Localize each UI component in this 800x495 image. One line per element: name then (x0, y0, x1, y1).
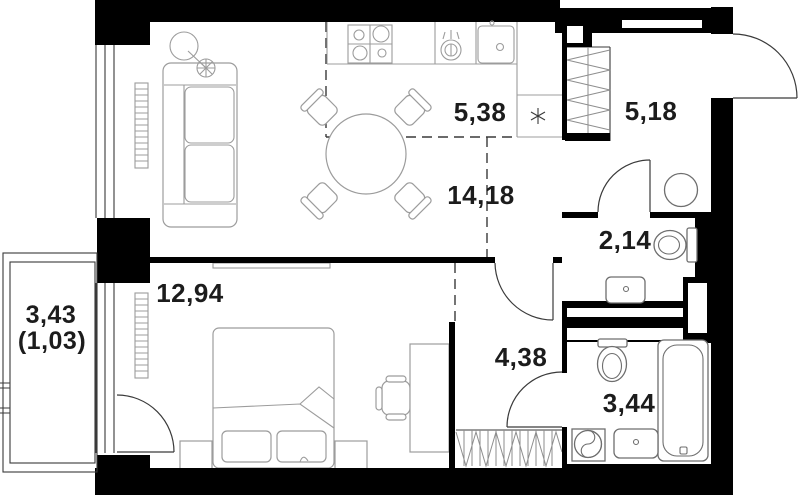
apartment-floor-plan: 5,38 5,18 14,18 2,14 12,94 4,38 3,44 3,4… (0, 0, 800, 495)
wall-right-entry-stub (711, 7, 733, 34)
shaft-opening-b (567, 328, 685, 340)
toilet-wc (654, 228, 697, 262)
wall-niche (622, 20, 702, 28)
washbasin-wc (606, 277, 645, 303)
corner-pier-top-left (95, 0, 150, 45)
desk (410, 344, 449, 452)
room-label-entrance-hall: 5,18 (625, 96, 678, 126)
washing-machine (572, 429, 605, 461)
washbasin-bathroom (614, 429, 658, 458)
shaft-opening-a (567, 308, 685, 317)
room-label-kitchen: 5,38 (454, 97, 507, 127)
nightstand-right (335, 441, 367, 469)
bed (213, 328, 334, 468)
room-label-toilet: 2,14 (599, 225, 652, 255)
pier-left (97, 218, 150, 283)
wall-top-left (95, 0, 560, 22)
closet-base (565, 133, 610, 141)
duct-opening (567, 26, 583, 43)
wall-kitchen-hall (562, 20, 567, 140)
bathtub (658, 340, 708, 461)
wall-living-bedroom (150, 257, 495, 263)
water-heater (665, 174, 698, 207)
wall-bedroom-hallway (449, 322, 455, 470)
wall-right (711, 98, 733, 495)
wall-bath-left-lower (562, 427, 567, 468)
wall-bottom-bath (562, 464, 733, 495)
room-label-hallway: 4,38 (495, 342, 548, 372)
dining-table (326, 114, 406, 194)
room-label-balcony: 3,43 (26, 301, 77, 329)
room-label-bathroom: 3,44 (603, 388, 656, 418)
pillow (277, 431, 326, 462)
sofa (163, 63, 237, 227)
shaft-opening-c (688, 283, 707, 333)
pillow (222, 431, 271, 462)
room-label-balcony-reduced: (1,03) (18, 327, 86, 355)
toilet-bathroom (598, 339, 628, 382)
wall-hall-wc-left (562, 212, 598, 218)
wall-stub-hallway (553, 257, 562, 263)
room-label-living-room: 14,18 (447, 180, 515, 210)
wall-bath-left-upper (562, 342, 567, 373)
floor-plan-page: 5,38 5,18 14,18 2,14 12,94 4,38 3,44 3,4… (0, 0, 800, 495)
room-label-bedroom: 12,94 (156, 278, 224, 308)
nightstand-left (180, 441, 212, 469)
